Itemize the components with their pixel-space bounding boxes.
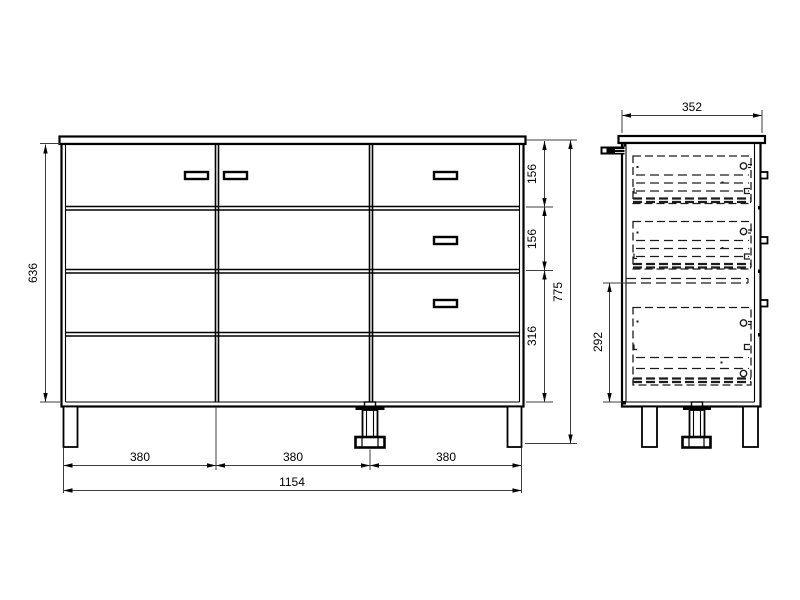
dim-label-156-top: 156 — [525, 164, 539, 184]
drawer-handle-3 — [434, 300, 457, 307]
dim-label-380-mid: 380 — [283, 450, 303, 464]
dim-label-380-left: 380 — [130, 450, 150, 464]
front-top-board — [60, 137, 526, 145]
drawer-handle-1 — [434, 172, 457, 179]
dim-label-775: 775 — [551, 282, 565, 302]
side-adjustable-foot — [683, 402, 712, 448]
dim-depth: 352 — [622, 100, 762, 133]
front-leg-left — [64, 407, 78, 448]
side-leg-back — [642, 407, 657, 448]
front-carcass-outline — [62, 144, 524, 407]
front-view: 636 156 156 316 775 — [26, 137, 577, 494]
wall-bracket — [601, 147, 626, 155]
dim-label-156-mid: 156 — [525, 229, 539, 249]
dim-label-352: 352 — [682, 100, 702, 114]
side-handle-tab-1 — [761, 172, 768, 179]
side-handle-tab-3 — [761, 300, 768, 307]
side-leg-front — [743, 407, 758, 448]
dim-total-height: 775 — [525, 140, 577, 444]
dim-total-width: 1154 — [64, 475, 522, 493]
front-leg-right — [508, 407, 522, 448]
dim-label-636: 636 — [26, 263, 40, 283]
drawer-handle-2 — [434, 237, 457, 244]
dim-label-1154: 1154 — [279, 475, 305, 489]
door-handle-right — [224, 172, 247, 179]
side-handle-tab-2 — [761, 237, 768, 244]
technical-drawing-canvas: 636 156 156 316 775 — [0, 0, 800, 600]
dim-drawer-heights: 156 156 316 — [525, 140, 577, 402]
front-adjustable-foot — [356, 402, 385, 448]
dim-label-380-right: 380 — [436, 450, 456, 464]
dim-label-316: 316 — [525, 326, 539, 346]
furniture-drawing: 636 156 156 316 775 — [0, 0, 800, 600]
door-handle-left — [185, 172, 208, 179]
dim-label-292: 292 — [591, 332, 605, 352]
dim-carcass-height: 636 — [26, 144, 60, 403]
side-view: 352 292 — [591, 100, 768, 448]
